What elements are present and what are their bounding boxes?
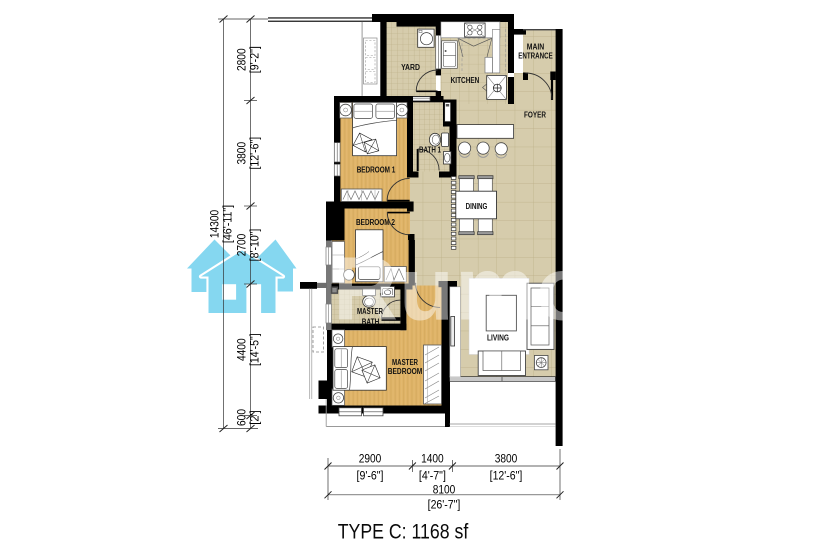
svg-text:3800: 3800 xyxy=(235,142,249,165)
svg-text:1400: 1400 xyxy=(421,452,444,466)
svg-text:2900: 2900 xyxy=(359,452,382,466)
svg-text:[12'-6"]: [12'-6"] xyxy=(248,137,262,170)
svg-text:MAIN: MAIN xyxy=(527,43,545,52)
svg-text:LIVING: LIVING xyxy=(487,334,509,343)
svg-text:[9'-6"]: [9'-6"] xyxy=(357,469,384,483)
svg-text:[2']: [2'] xyxy=(248,410,262,424)
svg-text:4400: 4400 xyxy=(235,338,249,361)
svg-text:[12'-6"]: [12'-6"] xyxy=(490,469,523,483)
svg-text:BATH 1: BATH 1 xyxy=(419,146,441,155)
svg-text:600: 600 xyxy=(235,409,249,426)
svg-text:MASTER: MASTER xyxy=(357,307,383,316)
svg-text:DINING: DINING xyxy=(466,202,488,211)
svg-text:[46'-11"]: [46'-11"] xyxy=(221,205,235,243)
svg-text:MASTER: MASTER xyxy=(392,358,418,367)
svg-text:[26'-7"]: [26'-7"] xyxy=(428,498,461,512)
svg-text:8100: 8100 xyxy=(433,483,456,497)
svg-text:2700: 2700 xyxy=(235,234,249,257)
svg-text:ENTRANCE: ENTRANCE xyxy=(518,52,553,61)
svg-text:KITCHEN: KITCHEN xyxy=(451,76,480,85)
svg-text:[4'-7"]: [4'-7"] xyxy=(419,469,446,483)
svg-text:BEDROOM 2: BEDROOM 2 xyxy=(356,218,395,227)
svg-text:BEDROOM 1: BEDROOM 1 xyxy=(357,166,396,175)
svg-text:TYPE C: 1168 sf: TYPE C: 1168 sf xyxy=(338,519,469,544)
svg-text:[8'-10"]: [8'-10"] xyxy=(248,229,262,262)
svg-text:3800: 3800 xyxy=(495,452,518,466)
svg-text:BATH: BATH xyxy=(362,317,380,326)
svg-text:2800: 2800 xyxy=(235,48,249,71)
svg-text:BEDROOM: BEDROOM xyxy=(388,367,423,376)
svg-text:14300: 14300 xyxy=(208,210,222,238)
svg-text:YARD: YARD xyxy=(401,63,420,72)
svg-text:[14'-5"]: [14'-5"] xyxy=(248,333,262,366)
svg-text:[9'-2"]: [9'-2"] xyxy=(248,46,262,73)
svg-text:FOYER: FOYER xyxy=(524,111,546,120)
